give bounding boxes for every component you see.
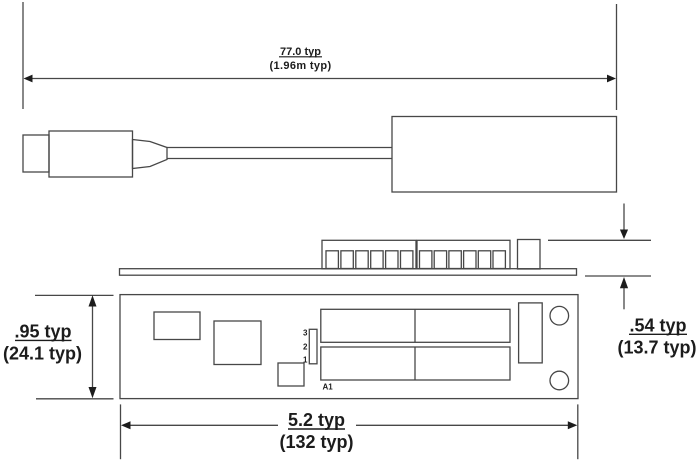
svg-text:(24.1 typ): (24.1 typ) bbox=[3, 344, 82, 364]
svg-text:.95 typ: .95 typ bbox=[14, 322, 71, 342]
svg-text:A1: A1 bbox=[323, 383, 334, 392]
svg-text:3: 3 bbox=[303, 329, 308, 338]
svg-text:77.0 typ: 77.0 typ bbox=[280, 46, 321, 58]
svg-text:.54 typ: .54 typ bbox=[629, 316, 686, 336]
svg-text:(1.96m typ): (1.96m typ) bbox=[270, 60, 332, 72]
svg-text:(132 typ): (132 typ) bbox=[279, 432, 353, 452]
svg-text:1: 1 bbox=[303, 355, 308, 364]
svg-text:(13.7 typ): (13.7 typ) bbox=[617, 337, 696, 357]
svg-text:5.2 typ: 5.2 typ bbox=[288, 410, 345, 430]
svg-text:2: 2 bbox=[303, 342, 308, 351]
